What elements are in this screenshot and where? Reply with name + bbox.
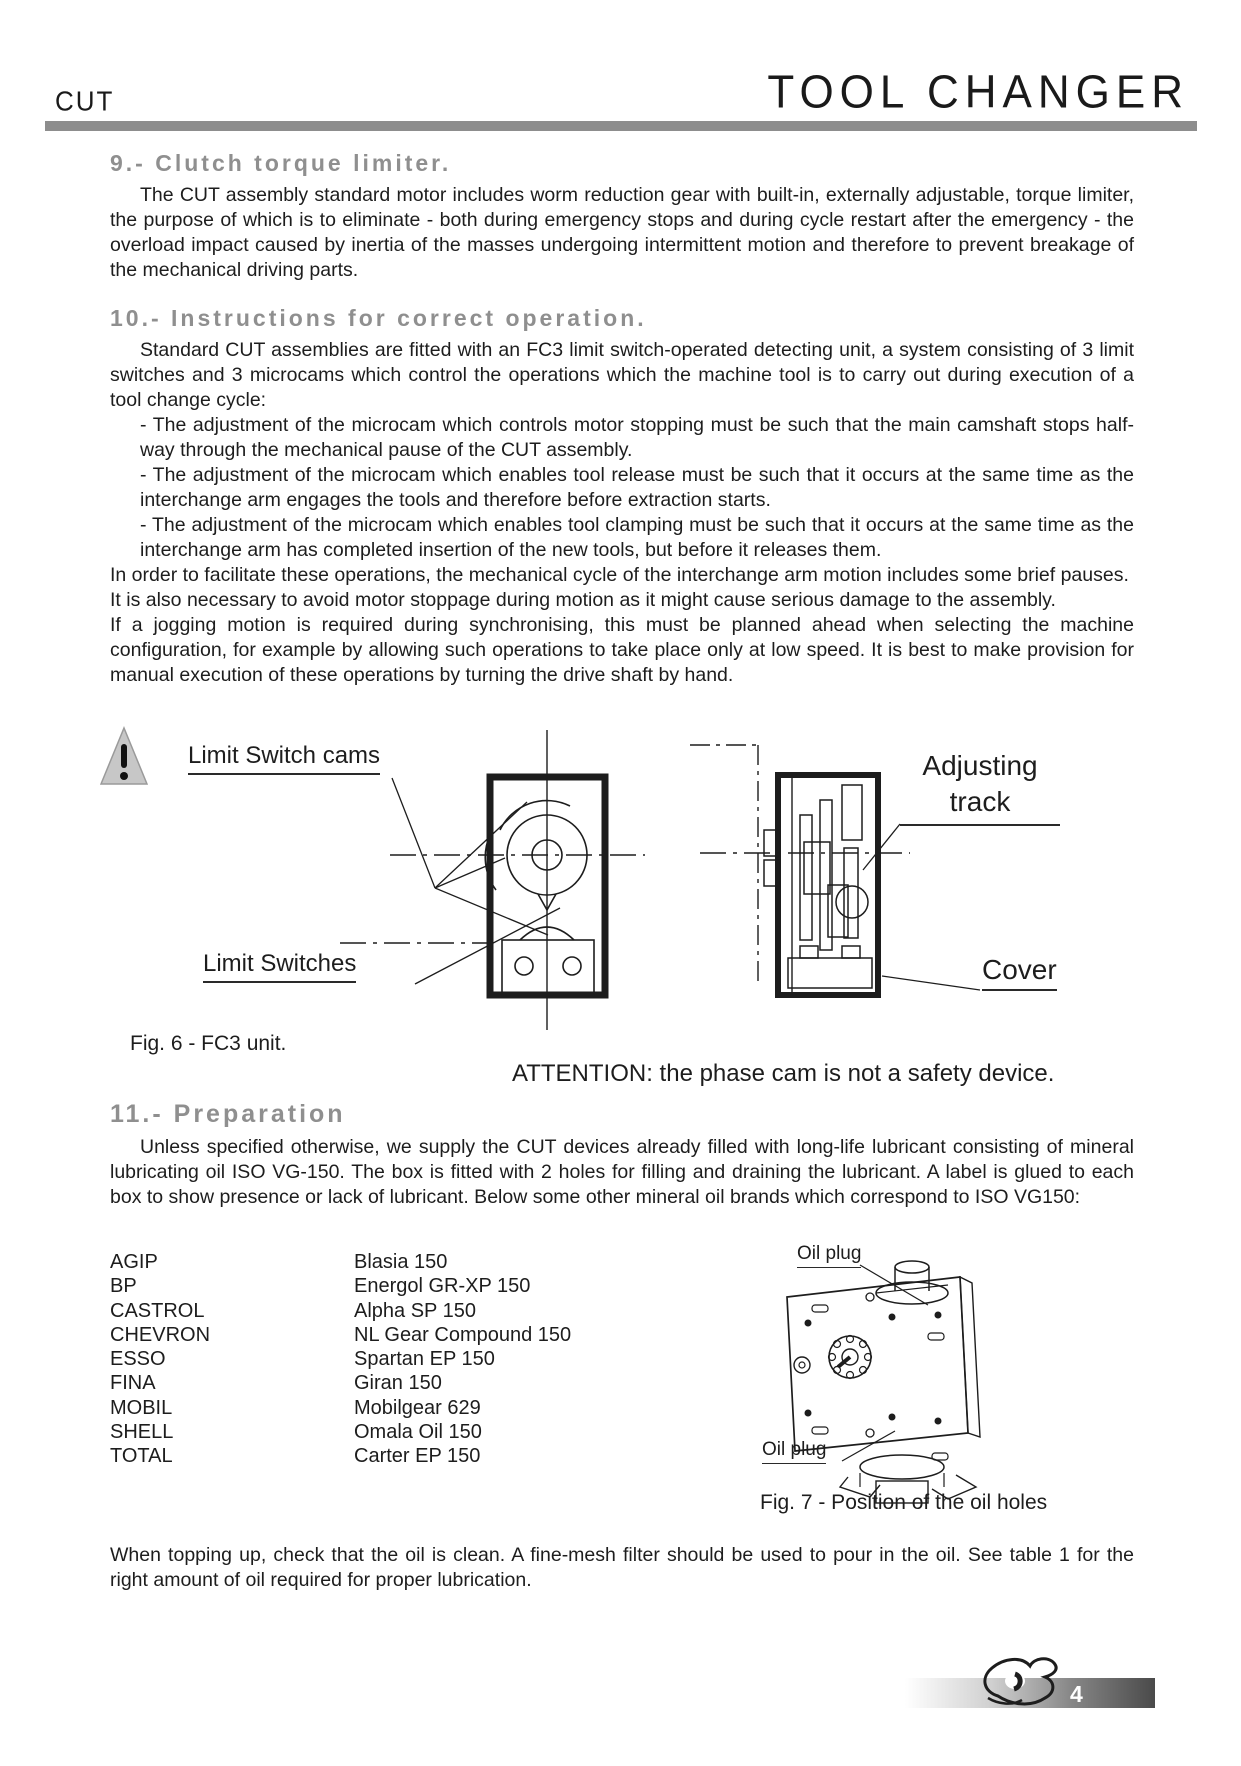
brand-name: CASTROL [110, 1299, 354, 1323]
label-oil-plug-top: Oil plug [797, 1243, 861, 1268]
figure-6-fc3-unit: Limit Switch cams Limit Switches Adjusti… [100, 726, 1141, 1110]
closing-paragraph: When topping up, check that the oil is c… [110, 1543, 1134, 1593]
list-item: AGIPBlasia 150 [110, 1250, 670, 1274]
manual-page: CUT TOOL CHANGER 9.- Clutch torque limit… [0, 0, 1241, 1766]
page-title: TOOL CHANGER [767, 67, 1189, 120]
attention-note: ATTENTION: the phase cam is not a safety… [512, 1060, 1054, 1088]
section-10-paragraph-2: It is also necessary to avoid motor stop… [110, 588, 1134, 613]
figure-7-caption: Fig. 7 - Position of the oil holes [760, 1491, 1047, 1515]
list-item: TOTALCarter EP 150 [110, 1444, 670, 1468]
brand-name: MOBIL [110, 1396, 354, 1420]
product-name: CUT [55, 85, 114, 118]
list-item: FINAGiran 150 [110, 1371, 670, 1395]
brand-name: TOTAL [110, 1444, 354, 1468]
spacer [110, 283, 1134, 305]
section-10-bullet-1: - The adjustment of the microcam which c… [140, 413, 1134, 463]
warning-triangle-icon [100, 726, 148, 786]
brand-oil: Energol GR-XP 150 [354, 1274, 670, 1298]
fc3-front-view [340, 730, 645, 1030]
brand-name: BP [110, 1274, 354, 1298]
section-9-heading: 9.- Clutch torque limiter. [110, 150, 1134, 177]
closing-text: When topping up, check that the oil is c… [110, 1543, 1134, 1593]
list-item: CHEVRONNL Gear Compound 150 [110, 1323, 670, 1347]
list-item: BPEnergol GR-XP 150 [110, 1274, 670, 1298]
brand-oil: Blasia 150 [354, 1250, 670, 1274]
section-10-bullet-2: - The adjustment of the microcam which e… [140, 463, 1134, 513]
label-cover: Cover [982, 954, 1057, 991]
section-9-paragraph: The CUT assembly standard motor includes… [110, 183, 1134, 283]
label-oil-plug-bottom: Oil plug [762, 1439, 826, 1464]
section-10-paragraph-3: If a jogging motion is required during s… [110, 613, 1134, 688]
section-11-heading: 11.- Preparation [110, 1100, 1134, 1129]
brand-name: ESSO [110, 1347, 354, 1371]
brand-oil: Omala Oil 150 [354, 1420, 670, 1444]
section-10-intro: Standard CUT assemblies are fitted with … [110, 338, 1134, 413]
section-10-paragraph-1: In order to facilitate these operations,… [110, 563, 1134, 588]
section-11-paragraph: Unless specified otherwise, we supply th… [110, 1135, 1134, 1210]
brand-oil: Mobilgear 629 [354, 1396, 670, 1420]
brand-name: FINA [110, 1371, 354, 1395]
figure-7-drawing [680, 1235, 1150, 1535]
brand-name: SHELL [110, 1420, 354, 1444]
section-11-text: 11.- Preparation Unless specified otherw… [110, 1100, 1134, 1210]
label-limit-switches: Limit Switches [203, 950, 356, 983]
brand-name: AGIP [110, 1250, 354, 1274]
gearbox-isometric [787, 1261, 980, 1503]
page-number: 4 [1070, 1681, 1083, 1708]
list-item: SHELLOmala Oil 150 [110, 1420, 670, 1444]
brand-oil: Carter EP 150 [354, 1444, 670, 1468]
header-divider-bar [45, 121, 1197, 131]
brand-oil: Spartan EP 150 [354, 1347, 670, 1371]
label-adjusting-track: Adjusting track [900, 748, 1060, 826]
list-item: MOBILMobilgear 629 [110, 1396, 670, 1420]
figure-7-oil-holes: Oil plug Oil plug Fig. 7 - Position of t… [680, 1235, 1150, 1535]
label-limit-switch-cams: Limit Switch cams [188, 742, 380, 775]
section-10-bullet-3: - The adjustment of the microcam which e… [140, 513, 1134, 563]
section-10-heading: 10.- Instructions for correct operation. [110, 305, 1134, 332]
figure-6-caption: Fig. 6 - FC3 unit. [130, 1032, 286, 1056]
oil-brands-list: AGIPBlasia 150 BPEnergol GR-XP 150 CASTR… [110, 1250, 670, 1469]
section-9-10-text: 9.- Clutch torque limiter. The CUT assem… [110, 150, 1134, 688]
brand-oil: Alpha SP 150 [354, 1299, 670, 1323]
brand-name: CHEVRON [110, 1323, 354, 1347]
list-item: CASTROLAlpha SP 150 [110, 1299, 670, 1323]
brand-oil: Giran 150 [354, 1371, 670, 1395]
brand-oil: NL Gear Compound 150 [354, 1323, 670, 1347]
brand-logo-icon [968, 1650, 1068, 1714]
list-item: ESSOSpartan EP 150 [110, 1347, 670, 1371]
